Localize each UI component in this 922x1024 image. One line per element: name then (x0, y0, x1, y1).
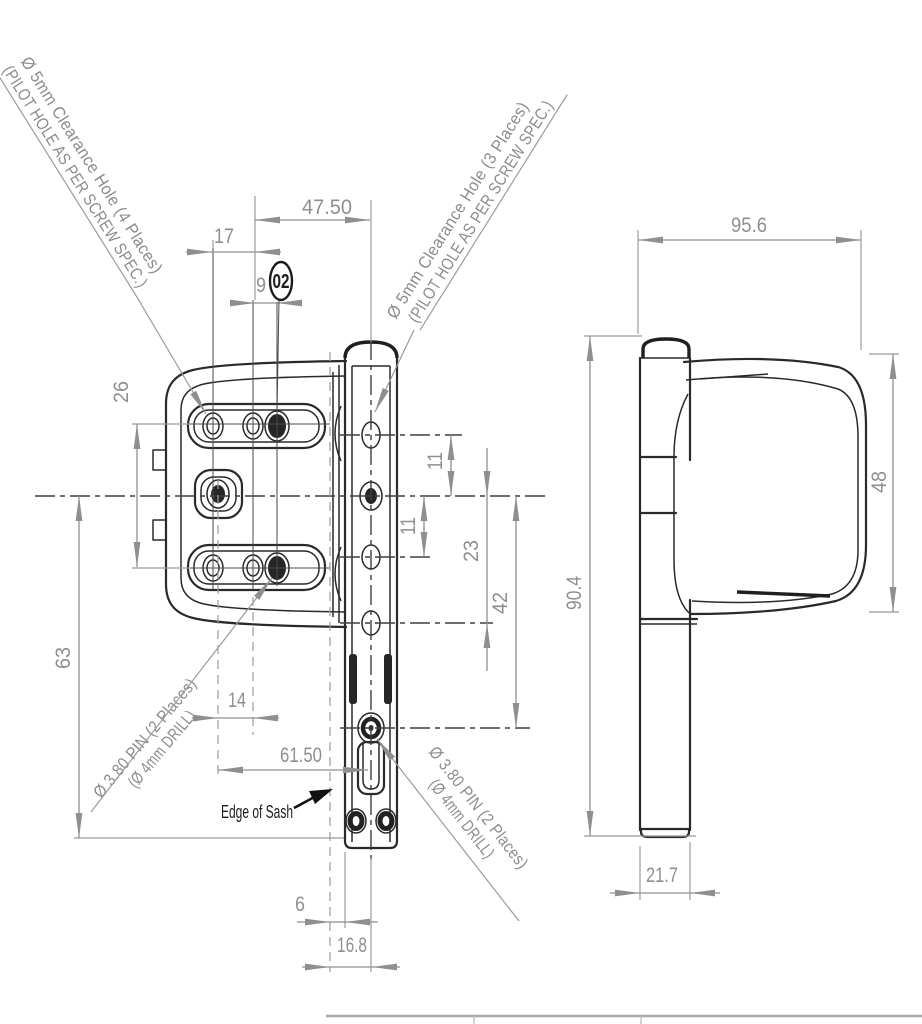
dim-14: 14 (192, 689, 279, 718)
sash-plate-outline (153, 361, 346, 627)
strip-slot-left (349, 654, 357, 704)
note-clearance-left-line1: Ø 5mm Clearance Hole (4 Places) (17, 53, 167, 277)
note-clearance-left-line2: (PILOT HOLE AS PER SCREW SPEC.) (0, 62, 152, 291)
dim-61-50-label: 61.50 (280, 744, 322, 767)
front-view: 47.50 17 9 02 26 (0, 47, 567, 972)
dim-47-50: 47.50 (255, 196, 370, 220)
note-clearance-right-line1: Ø 5mm Clearance Hole (3 Places) (383, 98, 533, 322)
handle-neck (674, 394, 689, 613)
dim-16-8-label: 16.8 (337, 934, 367, 957)
dim-23: 23 (460, 448, 487, 671)
dim-90-4-label: 90.4 (563, 576, 586, 610)
note-clearance-left: Ø 5mm Clearance Hole (4 Places) (PILOT H… (0, 47, 176, 304)
dim-11-lower: 11 (397, 496, 424, 557)
engineering-drawing-window-handle: 47.50 17 9 02 26 (0, 0, 922, 1024)
hinge-knuckle-lower (335, 547, 341, 601)
bar-top-cap (643, 339, 689, 358)
dim-26: 26 (110, 381, 190, 568)
dim-11-upper-label: 11 (424, 452, 447, 470)
dim-63-label: 63 (52, 647, 75, 669)
dim-42: 42 (489, 496, 516, 728)
edge-of-sash-label: Edge of Sash (221, 802, 293, 822)
dim-9-label: 9 (256, 274, 266, 297)
dim-23-label: 23 (460, 540, 483, 562)
side-view: 95.6 48 90.4 21.7 (563, 214, 899, 900)
plate-left-notch-upper (153, 450, 166, 470)
side-view-dims: 95.6 48 90.4 21.7 (563, 214, 899, 900)
dim-11-upper: 11 (424, 435, 451, 496)
side-bar (640, 339, 697, 837)
note-clearance-right-line2: (PILOT HOLE AS PER SCREW SPEC.) (404, 97, 557, 326)
dim-16-8: 16.8 (302, 934, 400, 967)
dim-48-label: 48 (868, 471, 891, 493)
drawing-sheet: 47.50 17 9 02 26 (0, 0, 922, 1024)
dim-42-label: 42 (489, 592, 512, 614)
dim-47-50-label: 47.50 (302, 196, 352, 219)
dim-17: 17 (186, 225, 281, 252)
dim-17-label: 17 (214, 225, 234, 248)
dim-6: 6 (295, 893, 378, 922)
handle-grip-line (737, 592, 830, 596)
dim-26-label: 26 (110, 381, 133, 403)
title-block-edge (326, 1016, 922, 1024)
balloon-label: 02 (273, 271, 290, 293)
dim-95-6-label: 95.6 (731, 214, 767, 237)
dim-6-label: 6 (295, 893, 305, 916)
plate-left-notch-lower (153, 520, 166, 540)
balloon-02: 02 (270, 262, 292, 300)
dim-14-label: 14 (228, 689, 246, 712)
strip-slot-right (384, 654, 392, 704)
leader-clearance-left (141, 304, 206, 414)
dim-11-lower-label: 11 (397, 517, 420, 535)
edge-of-sash-arrowhead (309, 789, 333, 804)
note-clearance-right: Ø 5mm Clearance Hole (3 Places) (PILOT H… (383, 73, 567, 334)
edge-of-sash-callout: Edge of Sash (221, 789, 333, 822)
hinge-knuckle-upper (335, 406, 341, 461)
note-pin-right: Ø 3.80 PIN (2 Places) (Ø 4mm DRILL) (409, 743, 532, 885)
dim-21-7-label: 21.7 (646, 864, 678, 887)
note-pin-left: Ø 3.80 PIN (2 Places) (Ø 4mm DRILL) (90, 674, 216, 814)
top-slot (188, 404, 325, 448)
side-handle (674, 359, 866, 614)
